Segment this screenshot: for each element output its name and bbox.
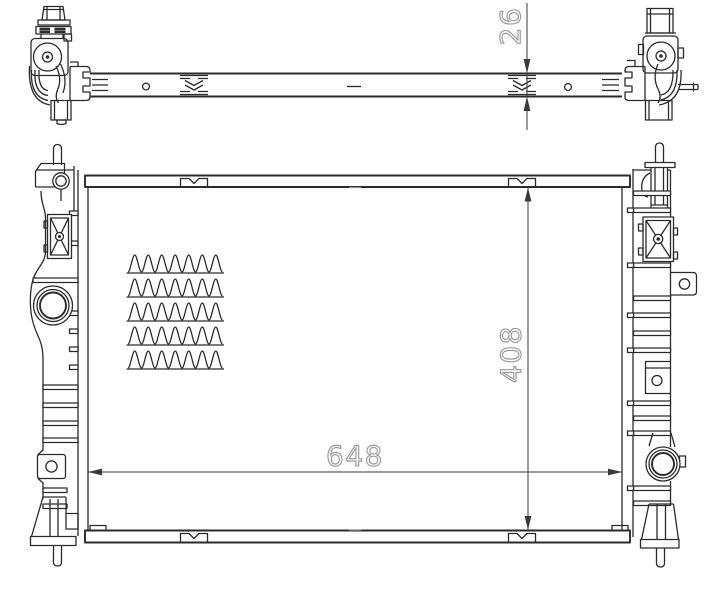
top-view-right-fitting [625,9,698,121]
top-view-bar [90,74,622,97]
right-tank-pin-bottom [657,548,665,567]
bar-hole-right [565,84,572,91]
dim-height: 408 [495,188,532,531]
dim-depth-label: 26 [494,7,527,46]
dim-width-arrow-left [88,469,102,476]
top-rail [85,176,630,188]
radiator-technical-drawing: 26 [0,0,711,600]
core-edges [88,187,622,530]
inlet-port [34,286,73,325]
right-x-bracket [639,217,678,262]
left-mount-bracket [38,455,66,479]
core-fins [127,255,225,369]
right-mount-tab [671,273,697,296]
left-tank-pin-top [54,145,62,166]
left-tank-pin-bottom [54,546,62,567]
spring-clip-left [180,76,208,95]
outlet-port [646,433,686,481]
left-x-bracket [44,215,72,259]
spring-clip-right [508,76,536,95]
right-tank [628,143,697,567]
left-tank-outline [30,191,45,499]
top-view: 26 [29,3,698,130]
right-tank-pin-top [656,143,664,163]
dim-height-label: 408 [495,325,528,383]
dim-depth-arrow-top [524,59,531,74]
drawing-canvas: 26 [0,0,711,600]
dim-height-arrow-top [525,188,532,202]
right-pin-flange [645,163,675,168]
dim-width-label: 648 [326,440,384,473]
top-view-left-fitting [29,7,90,125]
left-tank [30,145,78,567]
dim-width: 648 [88,440,622,476]
right-bracket-box [646,362,671,394]
dim-depth: 26 [494,3,530,130]
bottom-rail [85,526,630,543]
dim-depth-arrow-bottom [524,97,531,112]
bar-hole-left [143,83,150,90]
right-foot [641,504,680,567]
front-view: 648 408 [30,143,696,567]
dim-width-arrow-right [608,469,622,476]
dim-height-arrow-bottom [525,516,532,530]
